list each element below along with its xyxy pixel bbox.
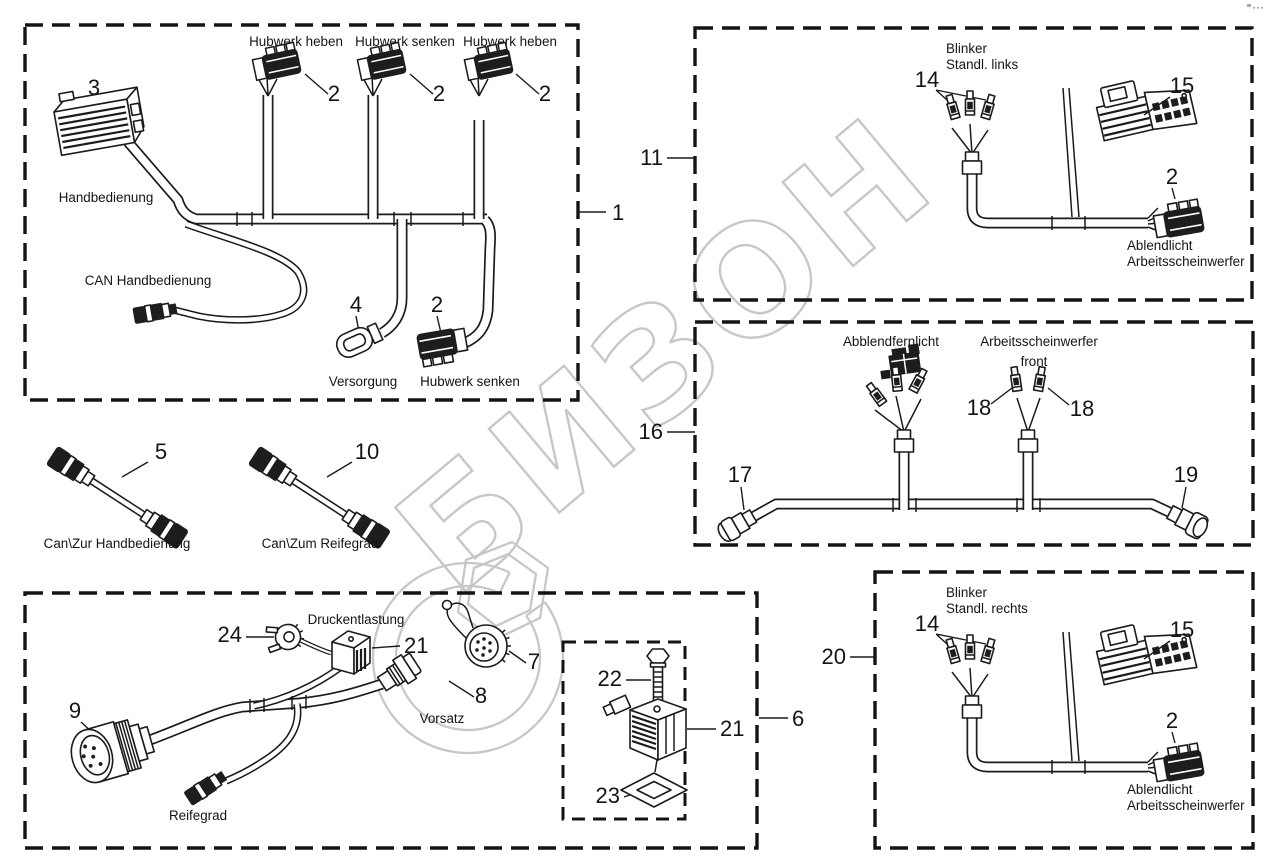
branch-arbeitsscheinwerfer-front: Arbeitsscheinwerfer front 18 18 <box>967 334 1099 452</box>
blinker-label-line1: Blinker <box>946 585 987 600</box>
leader-line <box>516 74 539 94</box>
leader-line <box>122 462 148 477</box>
ref-label-19: 19 <box>1174 462 1198 487</box>
blinker-label-line2: Standl. links <box>946 57 1019 72</box>
ref-label-2: 2 <box>1166 164 1178 189</box>
leader-lines <box>936 90 986 100</box>
connector-reifegrad: Reifegrad <box>169 769 228 823</box>
ref-label-15: 15 <box>1170 617 1194 642</box>
connector-label: Hubwerk heben <box>249 34 343 49</box>
blinker-label-line2: Standl. rechts <box>946 601 1028 616</box>
connector-label: Hubwerk senken <box>355 34 455 49</box>
ref-label-8: 8 <box>475 683 487 708</box>
supply-label: Versorgung <box>329 374 398 389</box>
harness-1-box: 1 Hubwerk heben 2 <box>25 25 624 400</box>
terminals-14: 14 <box>915 67 996 174</box>
plug-label-line1: Ablendlicht <box>1127 238 1193 253</box>
ref-label-16: 16 <box>639 419 663 444</box>
ref-label-15: 15 <box>1170 73 1194 98</box>
ref-label-22: 22 <box>598 666 622 691</box>
branch-label-line1: Arbeitsscheinwerfer <box>980 334 1098 349</box>
leader-line <box>449 681 474 697</box>
cable-5-label: Can\Zur Handbedienung <box>44 536 191 551</box>
connector-19: 19 <box>1165 462 1212 541</box>
plug-label-line2: Arbeitsscheinwerfer <box>1127 254 1245 269</box>
ref-label-14: 14 <box>915 611 939 636</box>
block-label: Handbedienung <box>59 190 154 205</box>
ref-label-2: 2 <box>1166 708 1178 733</box>
ref-label-6: 6 <box>792 706 804 731</box>
ref-label-23: 23 <box>596 783 620 808</box>
leader-line <box>509 651 526 663</box>
harness-20-box: 20 Blinker Standl. rechts 14 15 2 <box>822 572 1253 848</box>
leader-line <box>741 487 744 510</box>
can-label: CAN Handbedienung <box>85 273 212 288</box>
ref-label-5: 5 <box>155 439 167 464</box>
ref-label-4: 4 <box>350 292 362 317</box>
ref-label-24: 24 <box>218 622 242 647</box>
leader-line <box>305 74 328 94</box>
seal-icon <box>621 773 687 807</box>
leader-lines <box>936 634 986 644</box>
leader-line <box>410 74 433 94</box>
leader-line <box>1172 732 1175 743</box>
cable-10-label: Can\Zum Reifegrad <box>262 536 379 551</box>
connector-hubwerk-heben-2: Hubwerk heben 2 <box>463 34 557 106</box>
ref-label-17: 17 <box>728 462 752 487</box>
dashed-border <box>25 25 578 400</box>
connector-versorgung: 4 Versorgung <box>329 292 398 389</box>
leader-line <box>1182 487 1186 508</box>
ref-label-1: 1 <box>612 200 624 225</box>
terminals-14: 14 <box>915 611 996 718</box>
valve-body-icon <box>603 695 686 760</box>
harness-cables <box>744 396 1186 522</box>
ref-label-2: 2 <box>433 81 445 106</box>
connector-2: 2 <box>1152 708 1205 784</box>
corner-artifact <box>1247 4 1263 9</box>
harness-6-box: 6 9 Reifegrad 24 Druc <box>25 593 804 848</box>
ref-label-20: 20 <box>822 644 846 669</box>
ref-label-9: 9 <box>69 698 81 723</box>
connector-15: 15 <box>1093 613 1197 689</box>
ref-label-18: 18 <box>967 395 991 420</box>
plug-label-line1: Ablendlicht <box>1127 782 1193 797</box>
cable-icon <box>46 446 189 549</box>
lower-label: Hubwerk senken <box>420 374 520 389</box>
ref-label-10: 10 <box>355 439 379 464</box>
ref-label-2: 2 <box>328 81 340 106</box>
tire-label: Reifegrad <box>169 808 227 823</box>
connector-17: 17 <box>715 462 759 545</box>
ref-label-7: 7 <box>528 649 540 674</box>
valve-label: Druckentlastung <box>308 612 405 627</box>
blinker-label-line1: Blinker <box>946 41 987 56</box>
leader-line <box>327 462 352 477</box>
leader-line <box>1172 188 1175 199</box>
connector-15: 15 <box>1093 69 1197 145</box>
connector-label: Hubwerk heben <box>463 34 557 49</box>
connector-9: 9 <box>65 698 158 787</box>
ref-label-11: 11 <box>640 145 663 170</box>
connector-2: 2 <box>1152 164 1205 240</box>
bolt-icon <box>647 649 669 703</box>
branch-label: Abblendfernlicht <box>843 334 939 349</box>
plug-label-line2: Arbeitsscheinwerfer <box>1127 798 1245 813</box>
ref-label-14: 14 <box>915 67 939 92</box>
wiring-diagram: БИЗОН 1 <box>0 0 1275 865</box>
ref-label-2: 2 <box>539 81 551 106</box>
branch-abblendfernlicht: Abblendfernlicht <box>843 334 939 452</box>
ref-label-18: 18 <box>1070 396 1094 421</box>
parts-diagram-page: БИЗОН 1 <box>0 0 1275 865</box>
seal-23: 23 <box>596 773 687 808</box>
connector-handbedienung-block: 3 Handbedienung <box>51 75 153 205</box>
valve-assembly-box: 21 22 <box>563 642 744 819</box>
ref-label-21: 21 <box>720 716 744 741</box>
plug-24: 24 <box>218 622 306 653</box>
valve-connector-icon <box>332 631 370 674</box>
can-cable-5: 5 Can\Zur Handbedienung <box>44 439 191 551</box>
ref-label-2: 2 <box>431 292 443 317</box>
leader-line <box>991 388 1012 404</box>
leader-line <box>1048 388 1069 405</box>
watermark-text: БИЗОН <box>366 83 968 627</box>
socket-label: Vorsatz <box>420 711 465 726</box>
